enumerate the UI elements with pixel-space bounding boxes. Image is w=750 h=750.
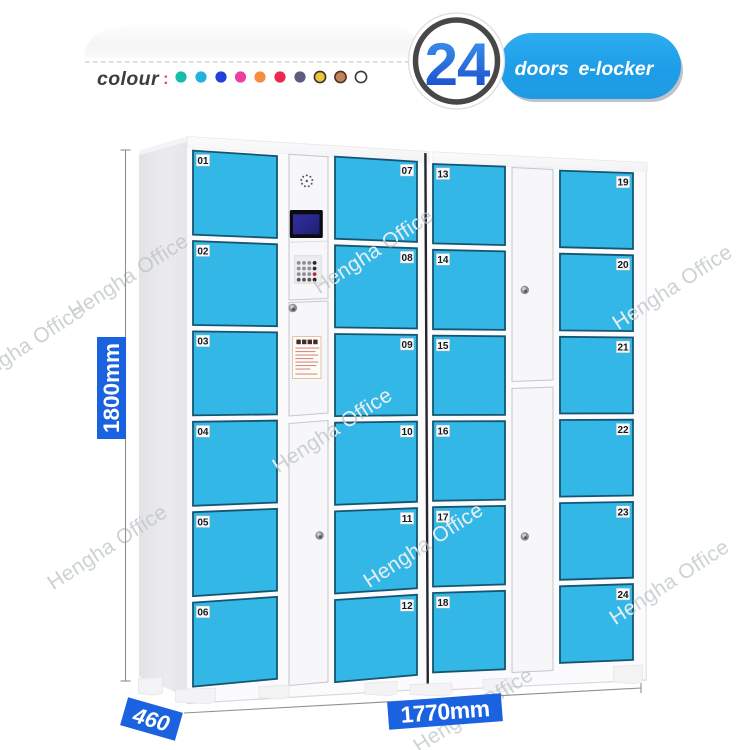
svg-text:10: 10 [402,427,414,438]
svg-text:05: 05 [197,517,209,528]
svg-text:24: 24 [425,31,491,98]
svg-text:14: 14 [437,255,449,266]
svg-text:18: 18 [437,598,449,609]
svg-text:colour: colour [97,68,160,90]
svg-text:04: 04 [197,427,209,438]
svg-text:doors e-locker: doors e-locker [515,58,655,80]
svg-text:03: 03 [197,337,209,348]
svg-text:09: 09 [402,340,414,351]
svg-text:15: 15 [437,341,449,352]
svg-text:21: 21 [617,343,629,354]
svg-text:02: 02 [197,246,209,257]
svg-text:13: 13 [437,169,449,180]
svg-text:12: 12 [402,601,414,612]
svg-text:07: 07 [402,166,414,177]
svg-text:16: 16 [437,427,449,438]
svg-text:22: 22 [617,425,629,436]
svg-text:06: 06 [197,608,209,619]
svg-text:11: 11 [402,514,413,525]
svg-text:1800mm: 1800mm [99,343,124,433]
svg-text:20: 20 [617,260,629,271]
svg-text:08: 08 [402,253,414,264]
svg-text:01: 01 [197,156,209,167]
svg-text:23: 23 [617,507,629,518]
svg-text:19: 19 [617,178,629,189]
svg-text::: : [163,69,169,88]
